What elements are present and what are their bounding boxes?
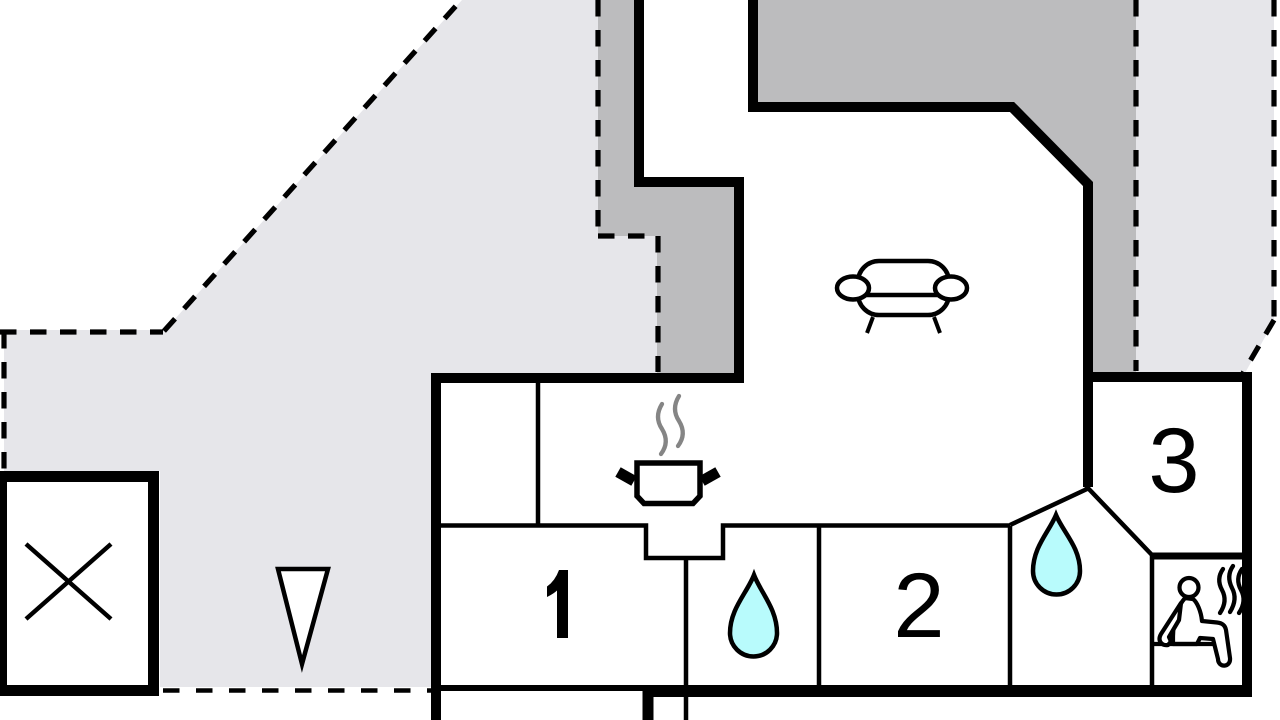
svg-text:3: 3 bbox=[1148, 410, 1199, 512]
svg-text:2: 2 bbox=[893, 555, 944, 657]
